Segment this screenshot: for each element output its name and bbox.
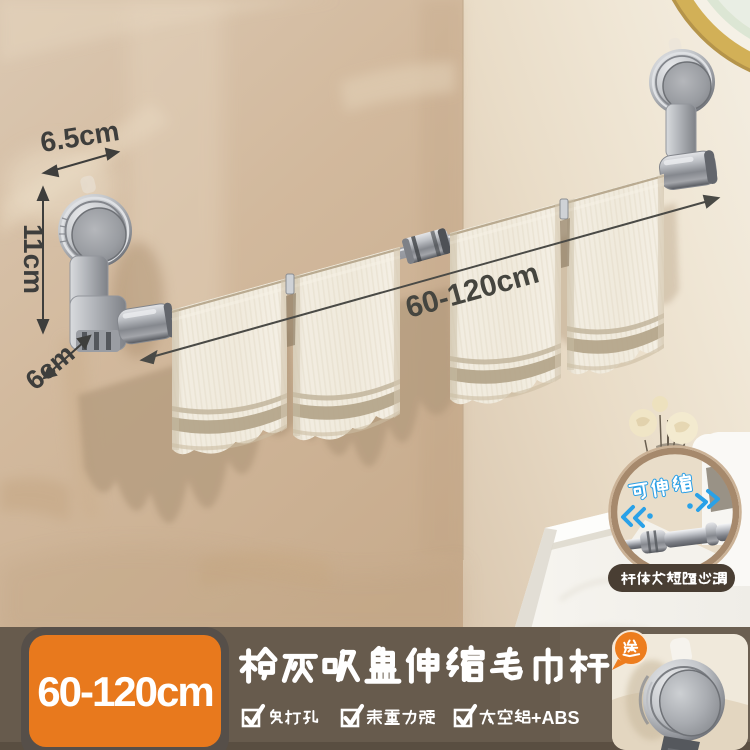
svg-text:11cm: 11cm [18,224,49,294]
svg-text:60-120cm: 60-120cm [37,668,212,715]
svg-text:+ABS: +ABS [531,708,580,728]
